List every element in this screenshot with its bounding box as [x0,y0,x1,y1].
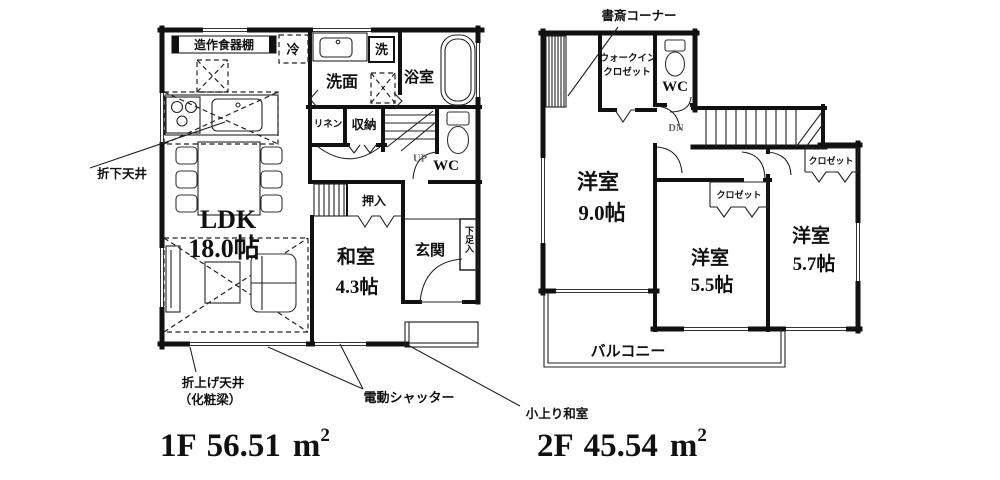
label-room55: 洋室 [691,246,729,269]
floor1-area-label: 1F56.51m2 [160,425,330,464]
bathtub-icon [441,35,475,105]
label-ldk-size: 18.0帖 [188,234,260,263]
label-balcony: バルコニー [591,343,666,360]
label-oshiire: 押入 [362,193,386,208]
label-storage: 収納 [351,117,376,132]
label-wc-2f: WC [662,79,688,95]
label-raised-tatami: 小上り和室 [525,406,589,421]
porch [405,322,478,347]
label-cupboard: 造作食器棚 [194,37,254,52]
label-closet-55: クロゼット [716,189,761,200]
label-linen: リネン [314,119,343,130]
vanity-sink-icon [313,33,367,61]
label-room57: 洋室 [792,224,830,247]
room9-door-arc [657,147,682,173]
label-closet-57: クロゼット [808,155,853,166]
floor2-area-label: 2F45.54m2 [537,425,707,464]
floor1-area-value: 56.51 [207,428,281,464]
label-room9: 洋室 [577,170,619,194]
label-washroom: 洗面 [326,72,358,91]
label-room55-size: 5.5帖 [691,273,734,296]
tatami-steps-icon [314,184,347,216]
floor1-area-sup: 2 [320,425,330,446]
floor2-area-unit: m [670,428,698,464]
shutter-leader [268,344,363,389]
label-shoebox: 下足入 [464,226,475,254]
tv-board-icon [166,246,180,312]
label-stairs-up: UP [413,154,428,165]
room57-door-arc [768,152,791,175]
label-fridge: 冷 [286,42,299,57]
toilet-1f-icon [447,112,469,154]
floor2-area-value: 45.54 [584,428,658,464]
label-lowered-ceiling: 折下天井 [97,166,148,181]
wic-door-icon [615,110,637,122]
room55-door-arc [742,152,765,178]
oshiire-door-icon [347,216,403,227]
lowered-ceiling-leader [90,122,225,168]
label-ldk: LDK [200,205,257,234]
stairs-1f-icon [385,111,436,151]
floor1-area-floor: 1F [160,428,197,464]
label-shutter: 電動シャッター [363,390,454,405]
label-stairs-dn: DN [668,123,684,134]
label-washer: 洗 [375,42,388,57]
label-bathroom: 浴室 [404,68,434,86]
label-genkan: 玄関 [415,241,445,259]
floor2-plan: 書斎コーナー ウォークイン クロゼット WC DN 洋室 9.0帖 クロゼット … [537,8,861,464]
floorplan-image: 造作食器棚 冷 洗面 洗 浴室 リネン 収納 UP WC 押入 和室 4.3帖 … [0,0,1000,480]
washroom-dashed-box [371,73,395,103]
label-washitsu: 和室 [337,245,375,268]
label-room9-size: 9.0帖 [578,201,625,225]
label-wic-2: クロゼット [603,66,651,78]
raised-ceiling-leader [190,347,196,372]
label-raised-ceiling-2: （化粧梁） [179,392,242,407]
stairs-2f-icon [706,110,823,147]
kitchen-counter [165,95,278,135]
label-room57-size: 5.7帖 [793,252,836,275]
wc2-door-arc [670,97,691,112]
label-study: 書斎コーナー [601,8,676,23]
floor1-plan: 造作食器棚 冷 洗面 洗 浴室 リネン 収納 UP WC 押入 和室 4.3帖 … [90,27,589,464]
entrance-door-arc [420,259,462,302]
floor2-area-sup: 2 [697,425,707,446]
storage-door-icon [348,145,376,153]
floor1-area-unit: m [293,428,321,464]
floorplan-page: 造作食器棚 冷 洗面 洗 浴室 リネン 収納 UP WC 押入 和室 4.3帖 … [0,0,1000,480]
label-wc-1f: WC [433,158,459,174]
floor2-area-floor: 2F [537,428,574,464]
label-washitsu-size: 4.3帖 [336,275,379,298]
study-desk-icon [546,36,566,107]
toilet-2f-icon [665,40,685,76]
label-wic-1: ウォークイン [599,53,656,64]
label-raised-ceiling-1: 折上げ天井 [182,375,245,390]
